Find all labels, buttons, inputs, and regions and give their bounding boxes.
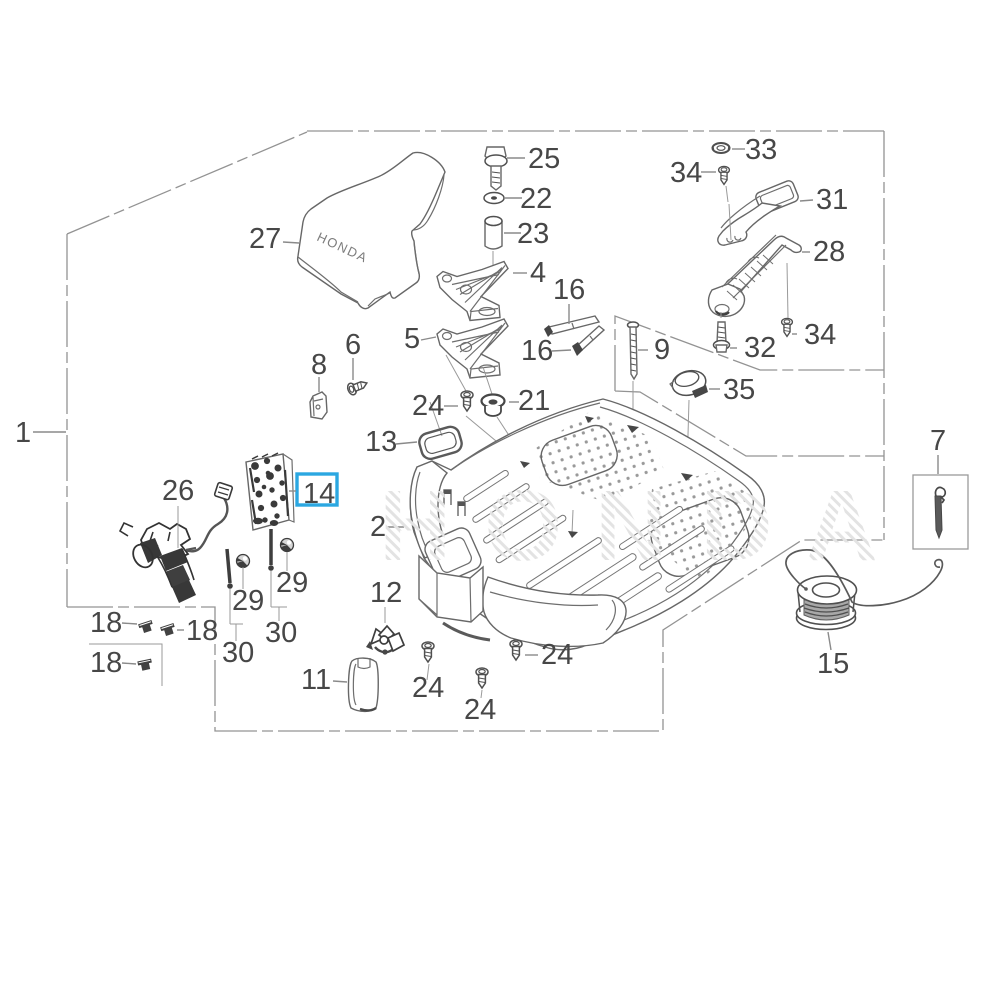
- svg-text:16: 16: [553, 274, 585, 306]
- svg-text:15: 15: [817, 648, 849, 680]
- svg-text:7: 7: [930, 425, 946, 457]
- svg-text:18: 18: [186, 615, 218, 647]
- svg-text:8: 8: [311, 349, 327, 381]
- svg-text:23: 23: [517, 218, 549, 250]
- svg-text:HONDA: HONDA: [379, 470, 911, 582]
- svg-text:32: 32: [744, 332, 776, 364]
- svg-text:29: 29: [276, 567, 308, 599]
- svg-text:30: 30: [222, 637, 254, 669]
- svg-text:34: 34: [804, 319, 836, 351]
- svg-text:24: 24: [412, 390, 444, 422]
- svg-text:24: 24: [464, 694, 496, 726]
- svg-text:22: 22: [520, 183, 552, 215]
- svg-text:24: 24: [541, 639, 573, 671]
- svg-text:18: 18: [90, 607, 122, 639]
- svg-text:21: 21: [518, 385, 550, 417]
- svg-text:30: 30: [265, 617, 297, 649]
- svg-text:9: 9: [654, 334, 670, 366]
- svg-text:14: 14: [303, 478, 335, 510]
- svg-text:29: 29: [232, 585, 264, 617]
- svg-text:33: 33: [745, 134, 777, 166]
- svg-text:18: 18: [90, 647, 122, 679]
- svg-text:35: 35: [723, 374, 755, 406]
- svg-text:25: 25: [528, 143, 560, 175]
- svg-text:24: 24: [412, 672, 444, 704]
- svg-text:34: 34: [670, 157, 702, 189]
- svg-text:5: 5: [404, 323, 420, 355]
- svg-text:31: 31: [816, 184, 848, 216]
- svg-text:27: 27: [249, 223, 281, 255]
- svg-text:28: 28: [813, 236, 845, 268]
- svg-text:26: 26: [162, 475, 194, 507]
- svg-text:16: 16: [521, 335, 553, 367]
- svg-text:13: 13: [365, 426, 397, 458]
- svg-text:11: 11: [301, 664, 331, 696]
- svg-text:1: 1: [15, 417, 31, 449]
- svg-text:4: 4: [530, 257, 546, 289]
- svg-text:6: 6: [345, 329, 361, 361]
